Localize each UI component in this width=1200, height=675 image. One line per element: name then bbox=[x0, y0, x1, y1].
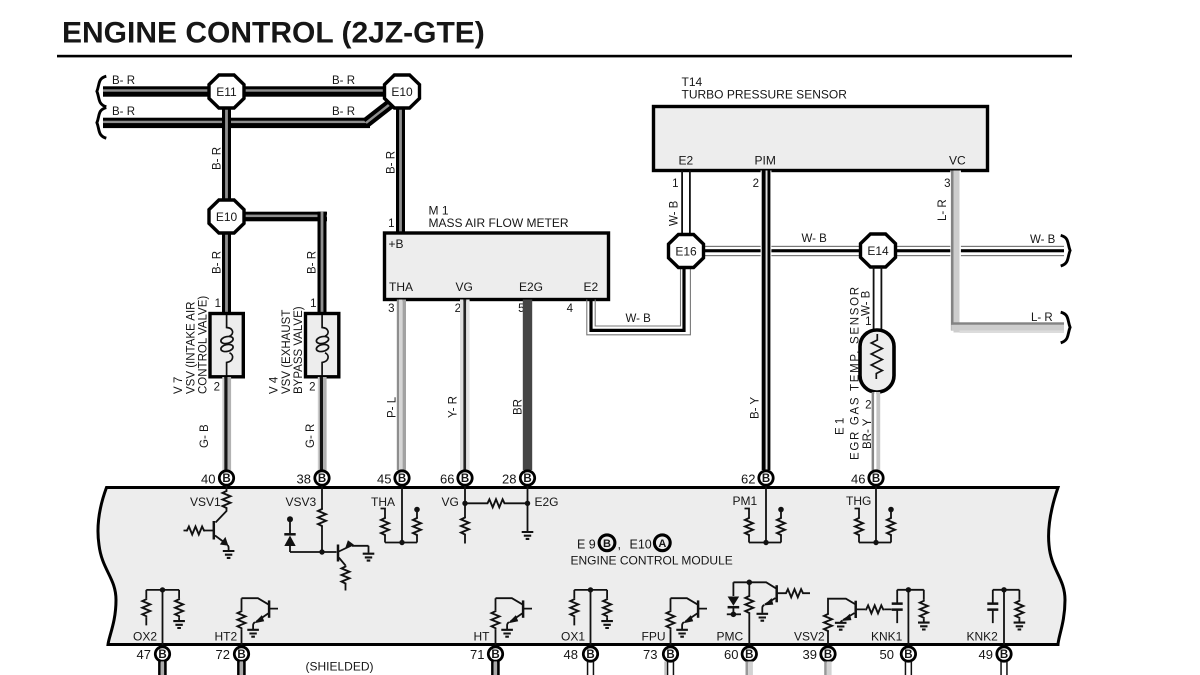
svg-text:BR- Y: BR- Y bbox=[862, 418, 874, 449]
svg-text:KNK2: KNK2 bbox=[967, 630, 999, 644]
svg-text:A: A bbox=[658, 538, 666, 550]
svg-text:B- R: B- R bbox=[386, 151, 398, 174]
svg-text:PIM: PIM bbox=[755, 154, 776, 168]
svg-text:B: B bbox=[603, 538, 611, 550]
svg-text:THA: THA bbox=[389, 280, 413, 294]
svg-text:OX2: OX2 bbox=[133, 630, 157, 644]
svg-text:E2G: E2G bbox=[519, 280, 543, 294]
svg-text:BR: BR bbox=[513, 399, 525, 415]
svg-text:E2G: E2G bbox=[535, 495, 559, 509]
svg-text:46: 46 bbox=[851, 472, 865, 487]
svg-text:V 4: V 4 bbox=[269, 376, 281, 394]
svg-text:Y- R: Y- R bbox=[448, 396, 460, 418]
svg-text:L- R: L- R bbox=[937, 199, 949, 221]
svg-text:E2: E2 bbox=[584, 280, 599, 294]
svg-text:G- B: G- B bbox=[199, 424, 211, 448]
svg-text:E 9: E 9 bbox=[577, 538, 596, 552]
svg-text:VSV1: VSV1 bbox=[190, 495, 221, 509]
svg-text:THA: THA bbox=[371, 495, 395, 509]
svg-text:1: 1 bbox=[865, 316, 871, 328]
svg-text:E10: E10 bbox=[216, 210, 238, 224]
svg-text:OX1: OX1 bbox=[561, 630, 585, 644]
svg-text:HT2: HT2 bbox=[215, 630, 238, 644]
svg-text:KNK1: KNK1 bbox=[871, 630, 903, 644]
svg-text:62: 62 bbox=[741, 472, 755, 487]
svg-text:38: 38 bbox=[297, 472, 311, 487]
svg-text:B- R: B- R bbox=[112, 106, 135, 118]
svg-text:2: 2 bbox=[309, 382, 315, 394]
svg-text:48: 48 bbox=[564, 647, 578, 662]
svg-text:39: 39 bbox=[803, 647, 817, 662]
svg-text:VSV3: VSV3 bbox=[286, 495, 317, 509]
svg-text:E2: E2 bbox=[679, 154, 694, 168]
svg-text:B- R: B- R bbox=[332, 75, 355, 87]
svg-text:TURBO PRESSURE SENSOR: TURBO PRESSURE SENSOR bbox=[682, 88, 848, 102]
svg-text:VSV (EXHAUST: VSV (EXHAUST bbox=[281, 310, 293, 394]
svg-text:E16: E16 bbox=[675, 244, 697, 258]
svg-text:VG: VG bbox=[456, 280, 473, 294]
svg-text:CONTROL VALVE): CONTROL VALVE) bbox=[198, 296, 210, 394]
svg-text:E 1: E 1 bbox=[835, 418, 847, 435]
svg-text:ENGINE CONTROL MODULE: ENGINE CONTROL MODULE bbox=[571, 554, 733, 568]
svg-text:45: 45 bbox=[377, 472, 391, 487]
svg-text:L- R: L- R bbox=[1031, 312, 1053, 324]
svg-text:B- Y: B- Y bbox=[750, 397, 762, 419]
svg-text:W- B: W- B bbox=[861, 290, 873, 316]
svg-text:HT: HT bbox=[474, 630, 491, 644]
svg-text:E14: E14 bbox=[867, 244, 889, 258]
svg-text:PM1: PM1 bbox=[733, 494, 758, 508]
svg-text:W- B: W- B bbox=[669, 200, 681, 226]
svg-text:71: 71 bbox=[470, 647, 484, 662]
svg-text:2: 2 bbox=[214, 382, 220, 394]
svg-text:,: , bbox=[618, 538, 621, 552]
svg-text:E10: E10 bbox=[630, 538, 652, 552]
svg-text:BYPASS VALVE): BYPASS VALVE) bbox=[293, 306, 305, 394]
svg-text:50: 50 bbox=[880, 647, 894, 662]
svg-text:P- L: P- L bbox=[387, 396, 399, 418]
svg-text:VG: VG bbox=[442, 495, 459, 509]
svg-text:2: 2 bbox=[865, 400, 871, 412]
svg-text:B- R: B- R bbox=[307, 251, 319, 274]
svg-text:VC: VC bbox=[949, 154, 966, 168]
svg-text:PMC: PMC bbox=[717, 630, 744, 644]
svg-text:VSV (INTAKE AIR: VSV (INTAKE AIR bbox=[186, 302, 198, 394]
svg-text:72: 72 bbox=[216, 647, 230, 662]
svg-text:EGR GAS TEMP. SENSOR: EGR GAS TEMP. SENSOR bbox=[850, 285, 862, 460]
svg-text:E10: E10 bbox=[391, 85, 413, 99]
svg-text:66: 66 bbox=[440, 472, 454, 487]
svg-text:2: 2 bbox=[753, 178, 759, 190]
svg-text:W- B: W- B bbox=[1030, 234, 1056, 246]
svg-text:E11: E11 bbox=[216, 85, 237, 99]
svg-text:B- R: B- R bbox=[332, 106, 355, 118]
svg-text:(SHIELDED): (SHIELDED) bbox=[306, 660, 374, 674]
svg-text:B- R: B- R bbox=[212, 251, 224, 274]
svg-text:3: 3 bbox=[388, 303, 394, 315]
svg-text:W- B: W- B bbox=[626, 313, 652, 325]
svg-text:49: 49 bbox=[979, 647, 993, 662]
svg-text:28: 28 bbox=[502, 472, 516, 487]
svg-text:MASS AIR FLOW METER: MASS AIR FLOW METER bbox=[429, 216, 569, 230]
svg-text:ENGINE CONTROL (2JZ-GTE): ENGINE CONTROL (2JZ-GTE) bbox=[62, 17, 485, 50]
svg-text:40: 40 bbox=[201, 472, 215, 487]
svg-text:4: 4 bbox=[567, 303, 574, 315]
svg-text:V 7: V 7 bbox=[173, 377, 185, 394]
svg-text:B- R: B- R bbox=[212, 147, 224, 170]
svg-text:1: 1 bbox=[672, 178, 678, 190]
svg-text:VSV2: VSV2 bbox=[794, 630, 825, 644]
svg-text:73: 73 bbox=[643, 647, 657, 662]
svg-text:1: 1 bbox=[310, 298, 316, 310]
svg-text:3: 3 bbox=[944, 178, 950, 190]
svg-text:FPU: FPU bbox=[642, 630, 666, 644]
svg-text:47: 47 bbox=[137, 647, 151, 662]
svg-text:1: 1 bbox=[388, 218, 394, 230]
svg-text:+B: +B bbox=[389, 237, 404, 251]
svg-text:THG: THG bbox=[846, 494, 871, 508]
svg-text:W- B: W- B bbox=[802, 233, 828, 245]
svg-text:B- R: B- R bbox=[112, 75, 135, 87]
svg-text:60: 60 bbox=[724, 647, 738, 662]
svg-text:G- R: G- R bbox=[305, 424, 317, 448]
svg-text:1: 1 bbox=[215, 298, 221, 310]
